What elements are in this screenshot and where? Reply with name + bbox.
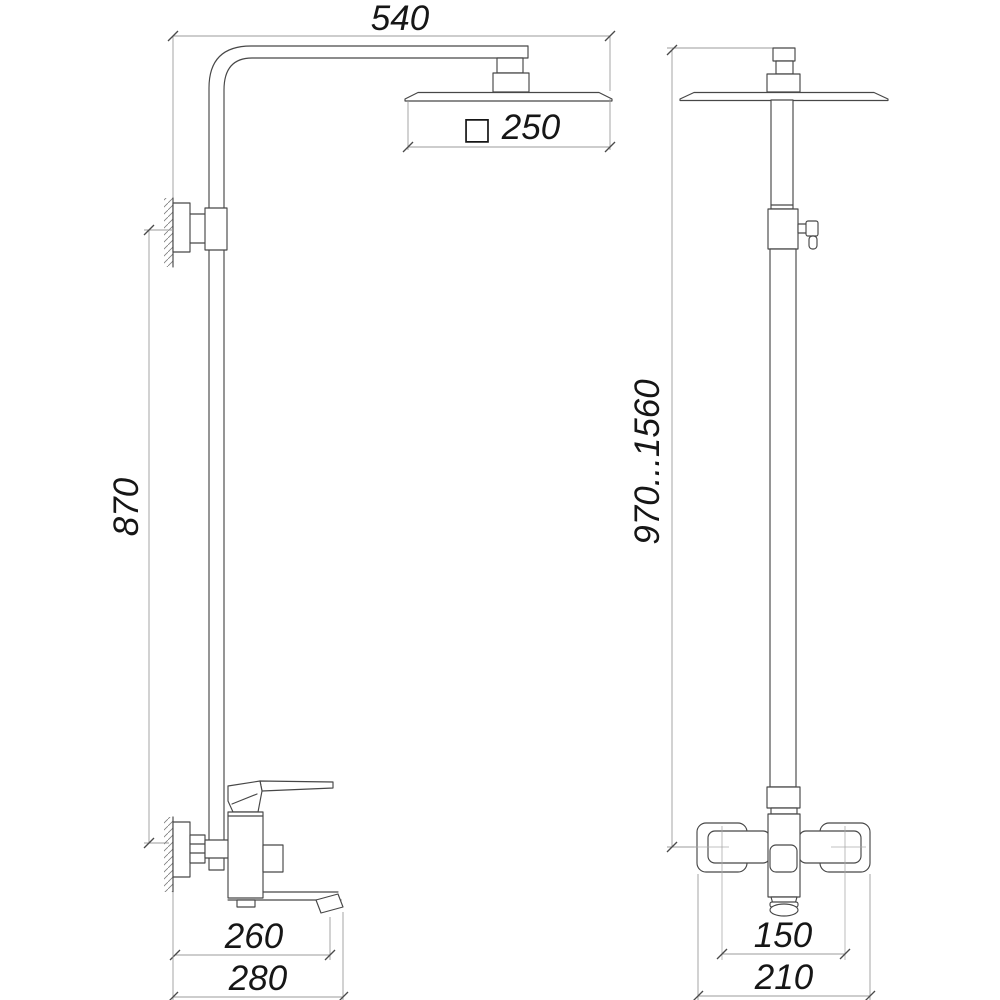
square-symbol-icon: □ [462, 111, 491, 147]
dim-label-540: 540 [371, 0, 430, 38]
dimension-height-range: 970...1560 [628, 45, 773, 852]
upper-wall-bracket [164, 198, 227, 267]
wall-hatching-upper [164, 198, 173, 267]
connector-top-block [773, 48, 795, 61]
connector-upper-block [497, 58, 523, 73]
escutcheon-side [173, 822, 190, 877]
dim-label-280: 280 [228, 959, 288, 998]
technical-drawing-canvas: 540 □ 250 [0, 0, 1000, 1000]
riser-pipe-front [768, 100, 818, 787]
dimension-spout-reach: 260 [170, 917, 335, 960]
dim-label-250: 250 [501, 108, 561, 147]
connector-mid-block [776, 61, 793, 74]
dim-label-260: 260 [224, 917, 284, 956]
pipe-outer-line [209, 46, 528, 870]
shower-system-drawing: 540 □ 250 [0, 0, 1000, 1000]
dimension-column-height: 870 [107, 225, 173, 848]
mixer-handle-lever [260, 781, 333, 791]
diverter-knob-side [263, 845, 283, 872]
lower-pipe [770, 249, 796, 787]
mixer-body-side [228, 812, 263, 898]
pipe-inner-line [224, 58, 528, 870]
riser-pipe-side [209, 46, 528, 870]
shower-head-plate-side [405, 93, 612, 102]
height-adjust-clamp [768, 209, 798, 249]
wall-hatching-lower [164, 817, 173, 892]
spout-tip-side [316, 894, 343, 913]
shower-head-plate-front [680, 93, 888, 101]
head-connector-side [493, 58, 529, 92]
mount-nut [190, 835, 205, 863]
mixer-side-view [164, 781, 343, 913]
dim-label-870: 870 [107, 477, 146, 536]
spout-outlet-front [770, 904, 798, 916]
dimension-head-size: □ 250 [403, 99, 615, 152]
clamp-lever-handle [809, 236, 817, 249]
dim-label-210: 210 [754, 958, 814, 997]
upper-pipe [771, 100, 793, 209]
head-connector-front [767, 48, 800, 92]
diverter-knob-front [770, 845, 797, 872]
side-view: 540 □ 250 [107, 0, 615, 1000]
clamp-lever-knuckle [806, 221, 818, 236]
mixer-neck [771, 808, 797, 814]
connector-flange [767, 74, 800, 92]
front-view: 970...1560 [628, 45, 888, 1000]
bracket-plate [173, 203, 190, 252]
mixer-front-view [694, 787, 870, 916]
mixer-top-block [767, 787, 800, 808]
dim-label-150: 150 [754, 916, 813, 955]
connector-lower-block [493, 73, 529, 92]
mixer-handle-grip [228, 781, 262, 812]
body-underside-nub [237, 900, 255, 907]
pipe-collar [205, 208, 227, 250]
dim-label-height-range: 970...1560 [628, 379, 667, 545]
